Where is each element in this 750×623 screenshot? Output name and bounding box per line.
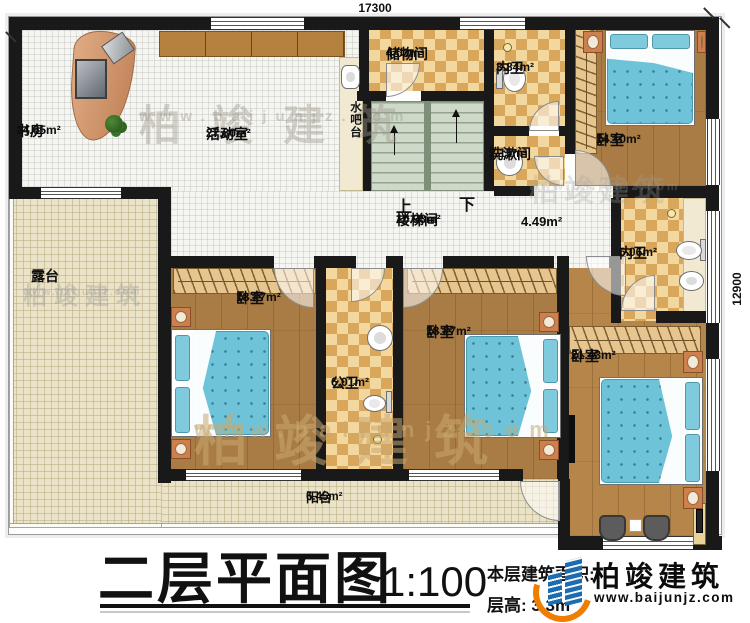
window <box>41 187 121 199</box>
bed-pillow <box>175 387 190 433</box>
wall-segment <box>706 185 719 211</box>
wall-segment <box>484 17 494 191</box>
wall-segment <box>9 17 22 193</box>
floorplan-drawing: 柏竣建筑 www.baijunjz.com 柏竣建筑 www.baijunjz.… <box>8 16 722 535</box>
stair-arrow-stem <box>394 133 395 155</box>
title-underline-shadow <box>100 611 470 613</box>
stairs-down-label: 下 <box>459 191 475 215</box>
tv-icon <box>696 509 703 533</box>
ceiling-lamp-icon <box>373 435 382 444</box>
floor-terrace <box>9 198 161 527</box>
wall-segment <box>386 256 403 268</box>
chair <box>643 515 670 541</box>
company-logo: 柏竣建筑 www.baijunjz.com <box>536 552 750 622</box>
wall-segment <box>359 17 369 101</box>
sink <box>679 271 704 291</box>
dimension-right: 12900 <box>730 244 744 334</box>
logo-building-icon <box>548 570 562 605</box>
window <box>707 119 720 185</box>
wall-segment <box>316 268 326 479</box>
wall-segment <box>158 187 171 483</box>
plan-title: 二层平面图 <box>98 534 393 615</box>
nightstand <box>171 307 191 327</box>
toilet-icon <box>386 391 392 413</box>
wall-segment <box>314 256 356 268</box>
window <box>211 17 304 30</box>
toilet-icon <box>676 241 702 260</box>
nightstand <box>539 312 559 332</box>
bed-pillow <box>610 34 648 49</box>
wall-segment <box>166 469 186 481</box>
floor-balcony <box>161 479 566 527</box>
plant-icon <box>105 115 123 133</box>
balcony-parapet <box>161 523 567 528</box>
wall-segment <box>499 469 523 481</box>
stair-arrow-stem <box>456 117 457 143</box>
plan-scale: 1:100 <box>382 558 487 606</box>
window <box>186 469 301 481</box>
bed-pillow <box>652 34 690 49</box>
nightstand <box>583 31 603 53</box>
wall-segment <box>301 469 409 481</box>
wall-segment <box>565 17 575 154</box>
toilet-icon <box>363 395 386 412</box>
terrace-parapet <box>9 198 14 528</box>
company-url: www.baijunjz.com <box>594 590 735 605</box>
bed-pillow <box>685 434 700 482</box>
wall-segment <box>706 471 719 550</box>
floorplan-canvas: 17300 12900 <box>0 0 750 623</box>
sink <box>367 325 393 351</box>
cabinet-counter <box>159 31 345 57</box>
window <box>409 469 499 481</box>
window <box>707 359 720 471</box>
nightstand <box>683 351 703 373</box>
wall-segment <box>706 17 719 119</box>
wall-segment <box>611 311 621 323</box>
wall-segment <box>656 311 706 323</box>
bed-pillow <box>543 389 558 433</box>
stair-arrow <box>390 125 398 133</box>
bed-pillow <box>685 382 700 430</box>
nightstand <box>683 487 703 509</box>
nightstand <box>539 440 559 460</box>
wall-segment <box>166 256 274 268</box>
company-name: 柏竣建筑 <box>592 555 724 595</box>
wall-segment <box>613 186 706 198</box>
dimension-top: 17300 <box>330 1 420 15</box>
wall-segment <box>357 91 386 101</box>
chair <box>599 515 626 541</box>
sink <box>341 65 360 89</box>
side-table <box>629 519 642 532</box>
window <box>460 17 525 30</box>
wall-segment <box>421 91 484 101</box>
logo-building-icon <box>565 557 582 606</box>
tv-icon <box>569 415 575 463</box>
nightstand <box>171 439 191 459</box>
room-label-water-bar: 水吧台 <box>347 101 363 139</box>
ceiling-lamp-icon <box>667 209 676 218</box>
door-arc <box>386 63 420 97</box>
company-logo-icon <box>538 554 590 614</box>
computer-icon <box>75 59 107 99</box>
wall-segment <box>706 323 719 359</box>
terrace-parapet <box>9 523 162 528</box>
wall-segment <box>494 186 534 196</box>
window <box>707 211 720 323</box>
wall-segment <box>393 268 403 479</box>
stair-rail <box>424 101 431 191</box>
wall-segment <box>363 101 371 191</box>
wall-segment <box>558 536 603 550</box>
bed-pillow <box>543 339 558 383</box>
wall-segment <box>443 256 554 268</box>
ceiling-lamp-icon <box>503 43 512 52</box>
nightstand <box>697 31 706 53</box>
stair-arrow <box>452 109 460 117</box>
wall-segment <box>494 126 529 136</box>
bed-pillow <box>175 335 190 381</box>
